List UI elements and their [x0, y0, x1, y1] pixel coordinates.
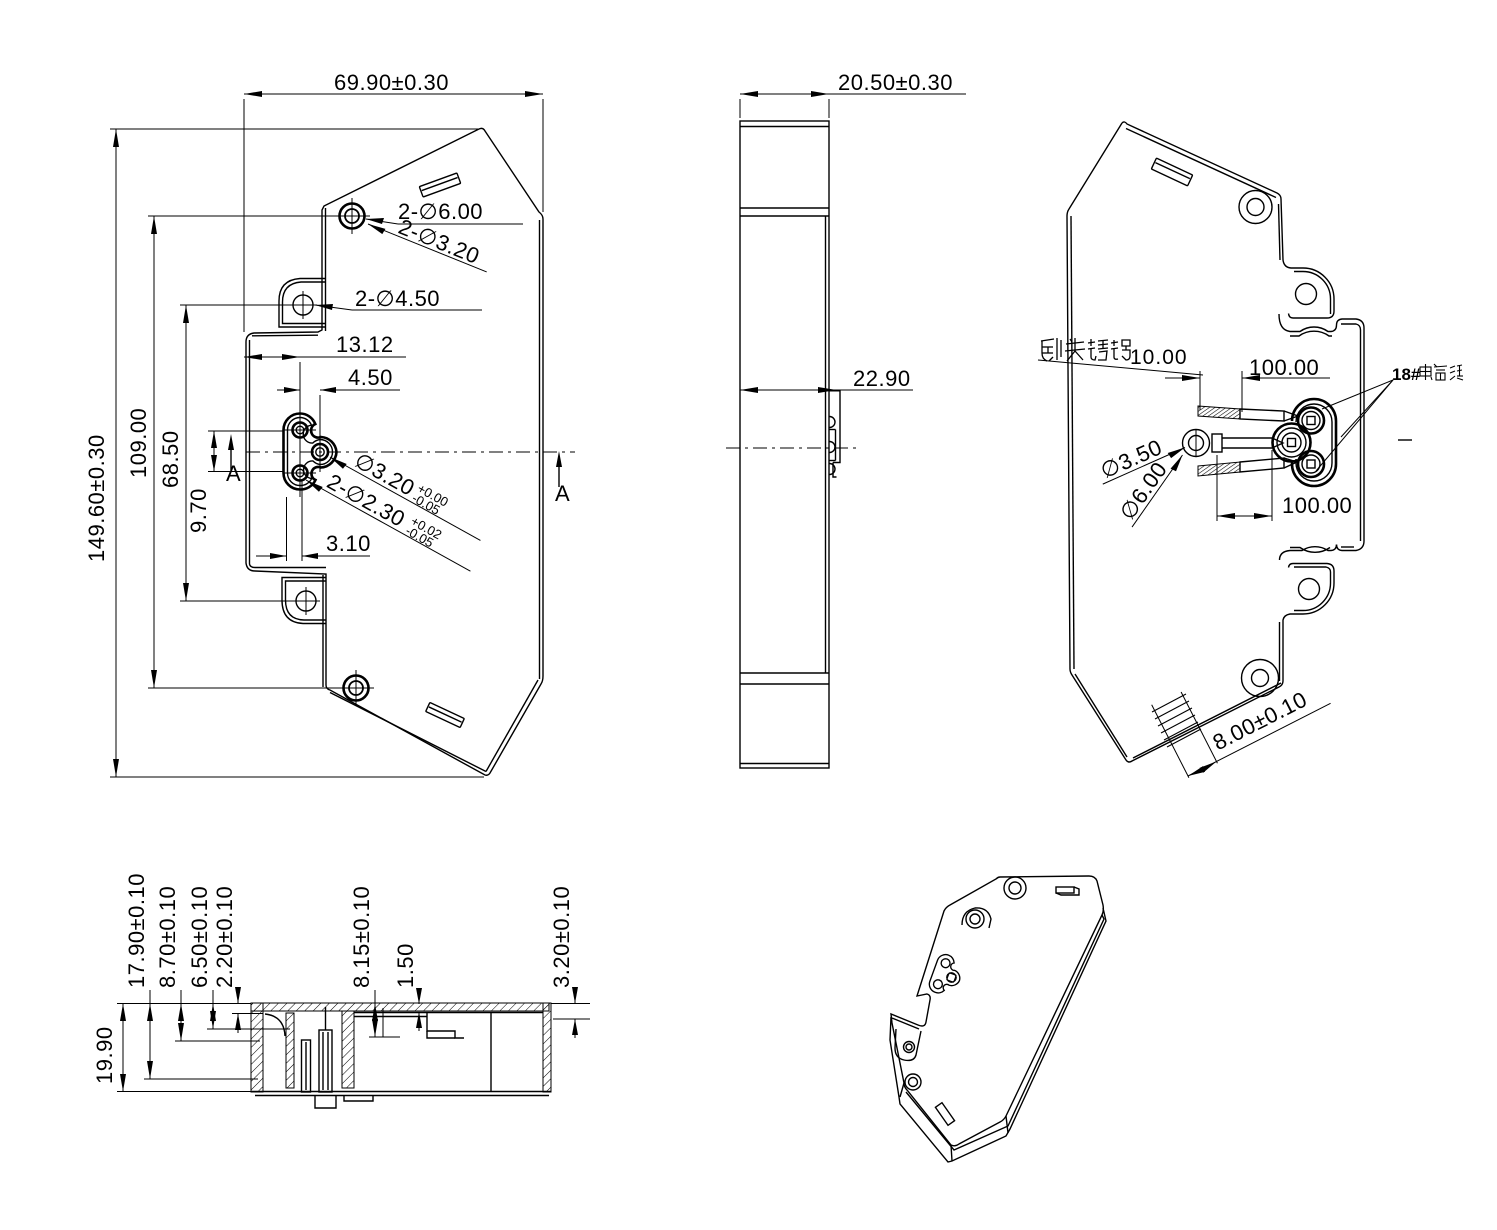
svg-text:20.50±0.30: 20.50±0.30 — [838, 70, 953, 95]
svg-text:8.15±0.10: 8.15±0.10 — [349, 886, 374, 988]
svg-text:2.20±0.10: 2.20±0.10 — [212, 886, 237, 988]
svg-text:149.60±0.30: 149.60±0.30 — [84, 434, 109, 562]
svg-text:19.90: 19.90 — [92, 1026, 117, 1084]
svg-text:13.12: 13.12 — [336, 332, 394, 357]
svg-text:109.00: 109.00 — [126, 408, 151, 478]
svg-text:69.90±0.30: 69.90±0.30 — [334, 70, 449, 95]
svg-text:8.70±0.10: 8.70±0.10 — [155, 886, 180, 988]
svg-text:4.50: 4.50 — [348, 365, 393, 390]
svg-text:A: A — [226, 461, 241, 486]
svg-text:100.00: 100.00 — [1282, 493, 1352, 518]
svg-text:2-∅4.50: 2-∅4.50 — [355, 286, 440, 311]
svg-text:18#: 18# — [1392, 365, 1421, 384]
svg-text:10.00: 10.00 — [1130, 346, 1188, 369]
svg-text:68.50: 68.50 — [158, 430, 183, 488]
svg-text:9.70: 9.70 — [186, 488, 211, 533]
svg-text:1.50: 1.50 — [393, 943, 418, 988]
svg-text:A: A — [555, 481, 570, 506]
svg-text:17.90±0.10: 17.90±0.10 — [124, 873, 149, 988]
svg-text:3.10: 3.10 — [326, 531, 371, 556]
svg-text:22.90: 22.90 — [853, 366, 911, 391]
svg-text:3.20±0.10: 3.20±0.10 — [549, 886, 574, 988]
svg-text:100.00: 100.00 — [1249, 355, 1319, 380]
svg-text:6.50±0.10: 6.50±0.10 — [187, 886, 212, 988]
